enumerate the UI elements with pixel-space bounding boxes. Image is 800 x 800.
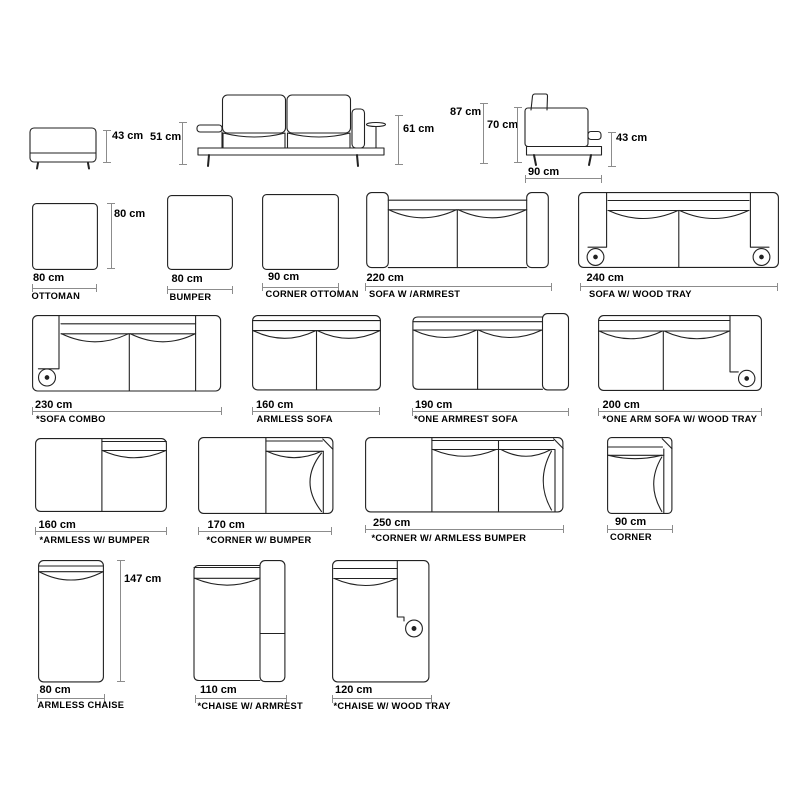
- corner-w-bumper-width-dim: 170 cm: [208, 519, 245, 531]
- one-arm-sofa-wood-tray-top-view-drawing: [598, 315, 762, 391]
- sofa-combo-top-view-drawing: [32, 313, 222, 392]
- ottoman-side-elevation-drawing: [28, 126, 104, 172]
- sofa-w-armrest-width-dim-line: [365, 286, 552, 287]
- armless-sofa-width-dim: 160 cm: [256, 399, 293, 411]
- chaise-w-wood-tray-top-view-drawing: [332, 560, 430, 683]
- corner-w-bumper-top-view-drawing: [198, 437, 334, 514]
- corner-ottoman-label: CORNER OTTOMAN: [266, 289, 359, 299]
- corner-armless-bumper-width-dim: 250 cm: [373, 517, 410, 529]
- armless-sofa-label: ARMLESS SOFA: [257, 414, 333, 424]
- sofa-side-elevation-drawing: [520, 90, 612, 170]
- sofa-side-back-height-dim: 70 cm: [487, 119, 518, 131]
- chaise-w-wood-tray-label: *CHAISE W/ WOOD TRAY: [334, 701, 451, 711]
- sofa-combo-width-dim: 230 cm: [35, 399, 72, 411]
- sofa-w-wood-tray-top-view-drawing: [578, 192, 779, 268]
- sofa-front-arm-height-dim: 51 cm: [150, 131, 181, 143]
- chaise-w-wood-tray-width-dim-line: [332, 698, 432, 699]
- sofa-w-armrest-label: SOFA W /ARMREST: [369, 289, 460, 299]
- armless-w-bumper-width-dim-line: [35, 531, 167, 532]
- ottoman-height-dim-line: [106, 130, 107, 163]
- sofa-w-wood-tray-width-dim-line: [580, 286, 778, 287]
- chaise-w-wood-tray-width-dim: 120 cm: [335, 684, 372, 696]
- sofa-side-arm-height-dim-line: [611, 132, 612, 167]
- sofa-w-wood-tray-width-dim: 240 cm: [587, 272, 624, 284]
- one-arm-sofa-wood-tray-width-dim-line: [598, 411, 762, 412]
- armless-chaise-top-view-drawing: [38, 560, 104, 683]
- sofa-front-elevation-drawing: [195, 92, 395, 170]
- sofa-front-tray-height-dim-line: [398, 115, 399, 165]
- chaise-w-armrest-width-dim-line: [195, 698, 287, 699]
- bumper-width-dim: 80 cm: [172, 273, 203, 285]
- sofa-side-overall-height-dim: 87 cm: [450, 106, 481, 118]
- ottoman-depth-dim: 80 cm: [114, 208, 145, 220]
- corner-label: CORNER: [610, 532, 652, 542]
- chaise-w-armrest-label: *CHAISE W/ ARMREST: [198, 701, 303, 711]
- sofa-w-wood-tray-label: SOFA W/ WOOD TRAY: [589, 289, 692, 299]
- corner-w-bumper-label: *CORNER W/ BUMPER: [207, 535, 312, 545]
- sofa-side-back-height-dim-line: [517, 107, 518, 163]
- armless-w-bumper-width-dim: 160 cm: [39, 519, 76, 531]
- ottoman-label: OTTOMAN: [32, 291, 81, 301]
- sofa-side-depth-dim: 90 cm: [528, 166, 559, 178]
- armless-w-bumper-top-view-drawing: [35, 438, 167, 512]
- sofa-side-arm-height-dim: 43 cm: [616, 132, 647, 144]
- corner-armless-bumper-width-dim-line: [365, 529, 564, 530]
- one-armrest-sofa-width-dim: 190 cm: [415, 399, 452, 411]
- corner-armless-bumper-top-view-drawing: [365, 437, 564, 513]
- sofa-front-tray-height-dim: 61 cm: [403, 123, 434, 135]
- corner-top-view-drawing: [607, 437, 673, 514]
- corner-width-dim-line: [607, 529, 673, 530]
- chaise-w-armrest-width-dim: 110 cm: [200, 684, 237, 696]
- ottoman-top-view-drawing: [32, 203, 98, 270]
- armless-chaise-length-dim: 147 cm: [124, 573, 161, 585]
- sofa-w-armrest-width-dim: 220 cm: [367, 272, 404, 284]
- one-arm-sofa-wood-tray-width-dim: 200 cm: [603, 399, 640, 411]
- ottoman-depth-dim-line: [111, 203, 112, 269]
- armless-chaise-width-dim: 80 cm: [40, 684, 71, 696]
- corner-ottoman-width-dim: 90 cm: [268, 271, 299, 283]
- armless-w-bumper-label: *ARMLESS W/ BUMPER: [40, 535, 150, 545]
- one-armrest-sofa-width-dim-line: [412, 411, 569, 412]
- ottoman-height-dim: 43 cm: [112, 130, 143, 142]
- sofa-w-armrest-top-view-drawing: [365, 192, 551, 269]
- sofa-side-depth-dim-line: [525, 178, 602, 179]
- armless-chaise-label: ARMLESS CHAISE: [38, 700, 125, 710]
- bumper-label: BUMPER: [170, 292, 212, 302]
- ottoman-width-dim: 80 cm: [33, 272, 64, 284]
- corner-ottoman-top-view-drawing: [262, 194, 339, 270]
- armless-sofa-top-view-drawing: [252, 315, 381, 391]
- chaise-w-armrest-top-view-drawing: [193, 560, 286, 683]
- corner-armless-bumper-label: *CORNER W/ ARMLESS BUMPER: [372, 533, 527, 543]
- bumper-top-view-drawing: [167, 195, 233, 270]
- armless-chaise-length-dim-line: [120, 560, 121, 682]
- sofa-side-overall-height-dim-line: [483, 103, 484, 164]
- one-armrest-sofa-label: *ONE ARMREST SOFA: [414, 414, 518, 424]
- one-arm-sofa-wood-tray-label: *ONE ARM SOFA W/ WOOD TRAY: [603, 414, 758, 424]
- armless-sofa-width-dim-line: [252, 411, 381, 412]
- corner-ottoman-width-dim-line: [262, 287, 339, 288]
- corner-width-dim: 90 cm: [615, 516, 646, 528]
- sofa-front-arm-height-dim-line: [182, 122, 183, 165]
- armless-chaise-width-dim-line: [37, 698, 105, 699]
- bumper-width-dim-line: [167, 289, 233, 290]
- corner-w-bumper-width-dim-line: [198, 531, 332, 532]
- ottoman-width-dim-line: [32, 288, 97, 289]
- furniture-dimension-diagram: 43 cm 51 cm 61 cm 87 c: [0, 0, 800, 800]
- sofa-combo-width-dim-line: [32, 411, 222, 412]
- one-armrest-sofa-top-view-drawing: [412, 313, 569, 391]
- sofa-combo-label: *SOFA COMBO: [36, 414, 106, 424]
